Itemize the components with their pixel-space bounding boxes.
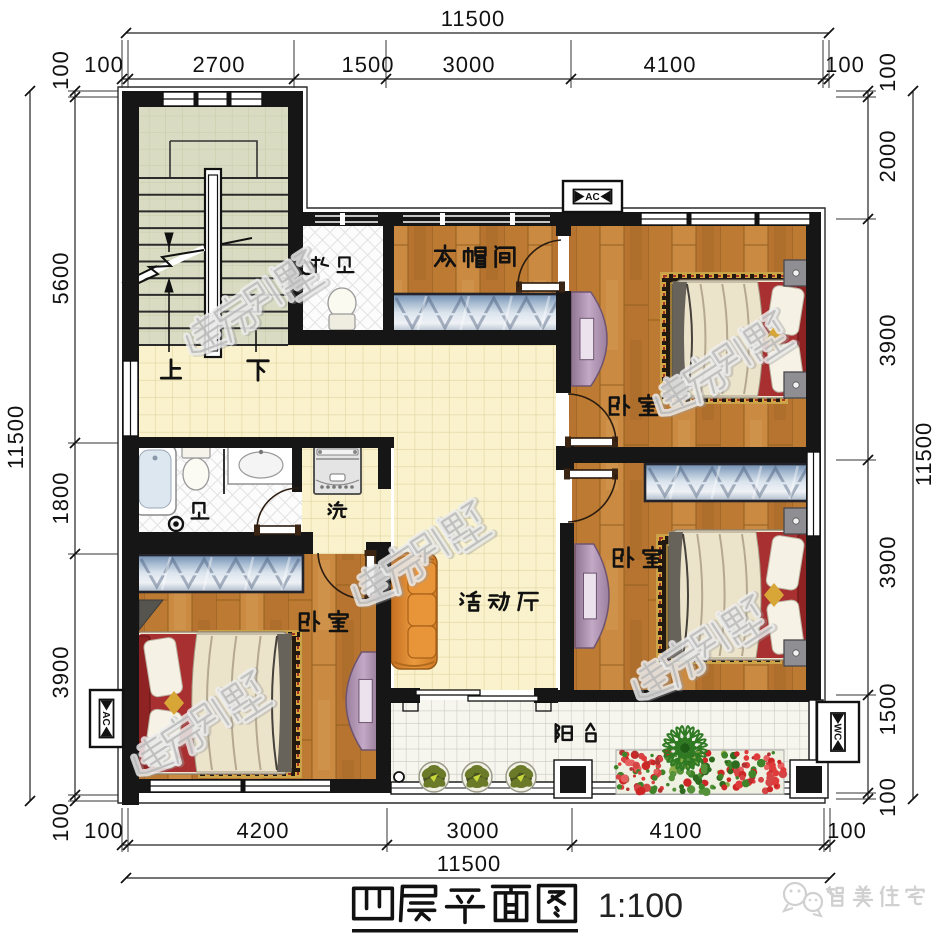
svg-text:5600: 5600	[48, 252, 73, 305]
svg-text:100: 100	[875, 777, 900, 817]
svg-text:3000: 3000	[447, 818, 500, 843]
svg-text:AC: AC	[100, 711, 111, 725]
svg-text:4100: 4100	[644, 52, 697, 77]
svg-text:100: 100	[48, 50, 73, 90]
svg-text:11500: 11500	[437, 851, 502, 876]
svg-text:3900: 3900	[875, 314, 900, 367]
svg-text:WC: WC	[832, 724, 843, 741]
svg-text:2700: 2700	[193, 52, 246, 77]
svg-text:11500: 11500	[441, 6, 506, 31]
svg-text:100: 100	[84, 52, 124, 77]
svg-text:3000: 3000	[443, 52, 496, 77]
svg-text:4200: 4200	[237, 818, 290, 843]
svg-text:1:100: 1:100	[598, 887, 683, 925]
svg-text:100: 100	[84, 818, 124, 843]
svg-text:2000: 2000	[875, 130, 900, 183]
svg-text:3900: 3900	[48, 646, 73, 699]
svg-text:100: 100	[825, 52, 865, 77]
svg-text:11500: 11500	[911, 422, 936, 487]
svg-text:4100: 4100	[650, 818, 703, 843]
svg-text:100: 100	[48, 802, 73, 842]
svg-text:1500: 1500	[875, 683, 900, 736]
svg-text:AC: AC	[585, 192, 599, 203]
svg-text:1500: 1500	[342, 52, 395, 77]
svg-text:100: 100	[827, 818, 867, 843]
svg-text:100: 100	[875, 52, 900, 92]
svg-text:1800: 1800	[48, 472, 73, 525]
svg-text:11500: 11500	[3, 405, 28, 470]
svg-text:3900: 3900	[875, 536, 900, 589]
